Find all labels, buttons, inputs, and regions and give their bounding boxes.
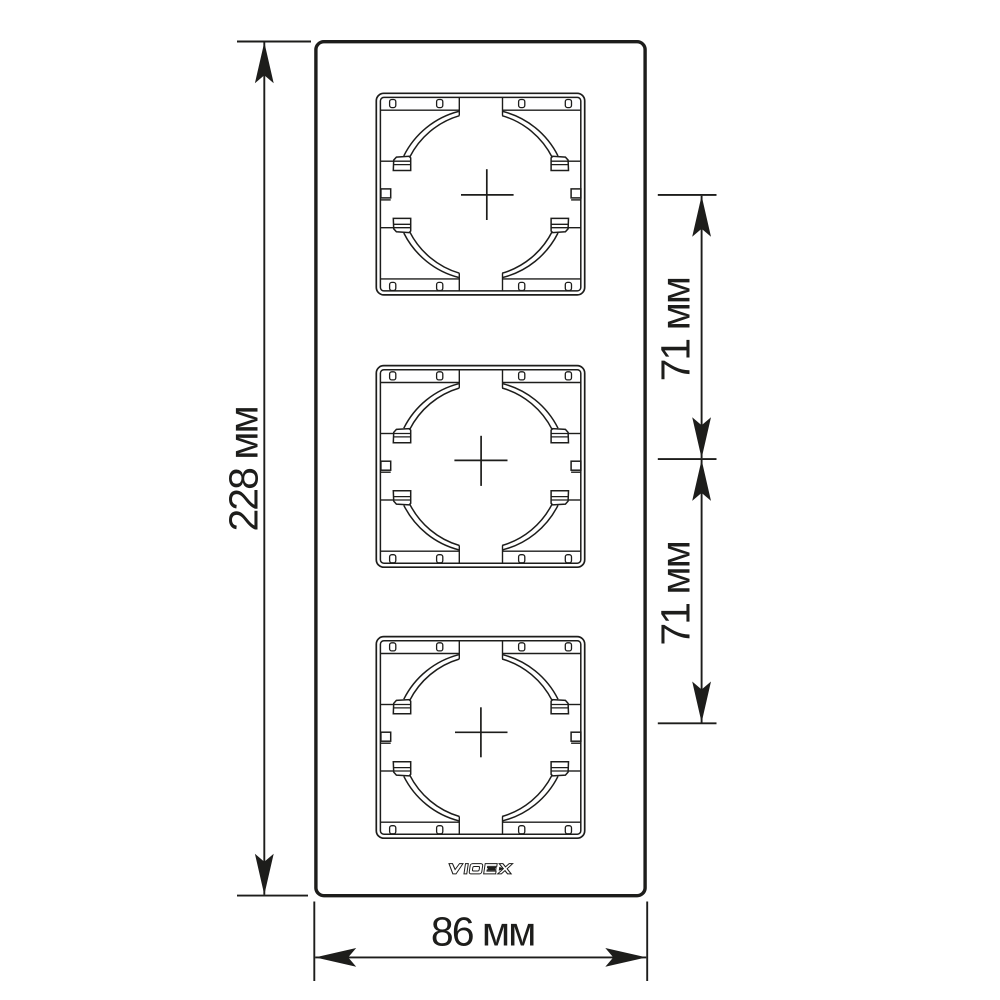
svg-text:86 мм: 86 мм <box>431 909 534 955</box>
svg-text:71 мм: 71 мм <box>652 542 698 645</box>
svg-text:71 мм: 71 мм <box>652 278 698 381</box>
svg-text:228 мм: 228 мм <box>221 407 267 531</box>
